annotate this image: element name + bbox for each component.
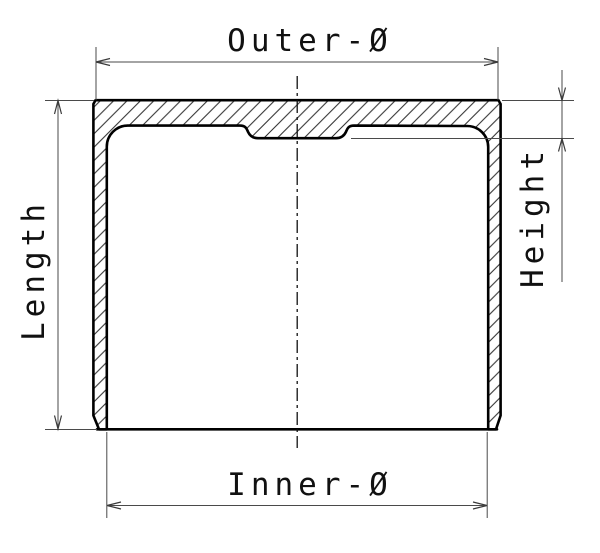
length-dimension: Length	[16, 101, 97, 430]
technical-drawing: Outer-Ø Inner-Ø Length Height	[0, 0, 600, 553]
height-label: Height	[515, 146, 551, 288]
inner-diameter-label: Inner-Ø	[227, 467, 393, 503]
outer-diameter-label: Outer-Ø	[227, 23, 393, 59]
length-label: Length	[16, 199, 52, 341]
tappet-section-drawing: Outer-Ø Inner-Ø Length Height	[0, 0, 600, 553]
